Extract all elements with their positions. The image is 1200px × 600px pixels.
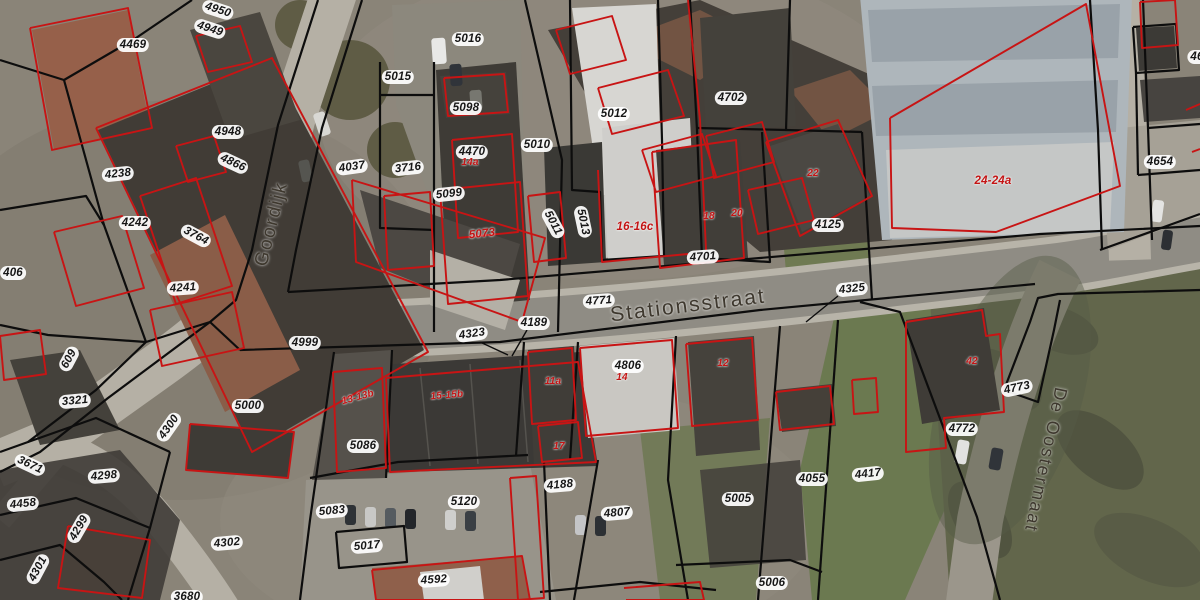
parcel-label-4772: 4772 — [946, 422, 978, 436]
parcel-label-3680: 3680 — [171, 590, 203, 600]
parcel-label-5017: 5017 — [350, 538, 383, 555]
street-name-label-stationsstraat: Stationsstraat — [610, 290, 767, 323]
house-number-label-15-15b: 15-15b — [430, 388, 464, 405]
parcel-label-3764: 3764 — [178, 222, 213, 250]
street-name-label-de-oostermaat: De Oostermaat — [1024, 386, 1068, 534]
parcel-label-4949: 4949 — [192, 17, 227, 40]
parcel-label-4302: 4302 — [210, 535, 243, 552]
parcel-label-5000: 5000 — [232, 399, 264, 413]
parcel-label-4458: 4458 — [6, 495, 40, 512]
parcel-label-4125: 4125 — [812, 218, 844, 232]
parcel-label-4188: 4188 — [543, 477, 576, 494]
house-number-label-5073: 5073 — [468, 226, 496, 243]
house-number-label-13-13b: 13-13b — [340, 387, 375, 409]
parcel-label-4241: 4241 — [166, 280, 199, 296]
map-canvas[interactable]: 4950494944694948486642384242376442414063… — [0, 0, 1200, 600]
parcel-label-4701: 4701 — [686, 249, 719, 265]
parcel-label-4323: 4323 — [455, 325, 489, 343]
house-number-label-12: 12 — [717, 357, 729, 371]
parcel-label-4773: 4773 — [1000, 378, 1035, 398]
parcel-label-4807: 4807 — [600, 505, 633, 522]
house-number-label-42: 42 — [966, 355, 978, 369]
house-number-label-17: 17 — [553, 440, 565, 454]
parcel-label-5010: 5010 — [521, 138, 553, 152]
house-number-label-24-24a: 24-24a — [974, 174, 1011, 188]
house-number-label-18: 18 — [703, 210, 715, 224]
house-number-label-14: 14 — [616, 371, 628, 385]
parcel-label-5011: 5011 — [539, 206, 566, 240]
parcel-label-4469: 4469 — [117, 38, 149, 52]
parcel-label-5016: 5016 — [452, 32, 484, 46]
parcel-label-4999: 4999 — [289, 336, 321, 350]
parcel-label-4866: 4866 — [215, 150, 250, 176]
label-layer: 4950494944694948486642384242376442414063… — [0, 0, 1200, 600]
parcel-label-4417: 4417 — [851, 465, 885, 482]
street-name-label-goordijk: Goordijk — [255, 180, 290, 268]
house-number-label-16-16c: 16-16c — [616, 220, 653, 234]
parcel-label-5083: 5083 — [315, 503, 348, 520]
parcel-label-4189: 4189 — [518, 316, 550, 330]
parcel-label-4702: 4702 — [715, 91, 747, 105]
parcel-label-4037: 4037 — [335, 158, 369, 176]
parcel-label-5005: 5005 — [722, 492, 754, 506]
parcel-label-4298: 4298 — [87, 468, 120, 485]
house-number-label-11a: 11a — [545, 375, 562, 389]
parcel-label-406: 406 — [0, 266, 26, 280]
parcel-label-4592: 4592 — [417, 572, 450, 588]
parcel-label-5120: 5120 — [448, 495, 480, 509]
parcel-label-4300: 4300 — [154, 410, 184, 445]
parcel-label-3716: 3716 — [391, 159, 425, 176]
parcel-label-5013: 5013 — [573, 205, 593, 240]
parcel-label-4242: 4242 — [119, 216, 151, 230]
house-number-label-14a: 14a — [461, 156, 478, 170]
parcel-label-5012: 5012 — [598, 107, 630, 121]
parcel-label-4238: 4238 — [101, 165, 135, 182]
parcel-label-5006: 5006 — [756, 576, 788, 590]
parcel-label-4299: 4299 — [65, 510, 93, 545]
parcel-label-5015: 5015 — [382, 70, 414, 84]
house-number-label-22: 22 — [807, 167, 819, 181]
parcel-label-3321: 3321 — [58, 393, 91, 410]
parcel-label-4950: 4950 — [200, 0, 235, 22]
parcel-label-4325: 4325 — [835, 280, 869, 297]
parcel-label-4948: 4948 — [212, 125, 244, 139]
house-number-label-20: 20 — [731, 207, 743, 221]
parcel-label-5098: 5098 — [450, 101, 482, 115]
parcel-label-5086: 5086 — [347, 439, 379, 453]
parcel-label-4301: 4301 — [24, 551, 52, 586]
parcel-label-609: 609 — [57, 344, 81, 373]
parcel-label-46: 46 — [1187, 50, 1200, 64]
parcel-label-3671: 3671 — [12, 452, 47, 478]
parcel-label-5099: 5099 — [432, 185, 466, 202]
parcel-label-4055: 4055 — [796, 472, 828, 486]
parcel-label-4654: 4654 — [1144, 155, 1176, 169]
